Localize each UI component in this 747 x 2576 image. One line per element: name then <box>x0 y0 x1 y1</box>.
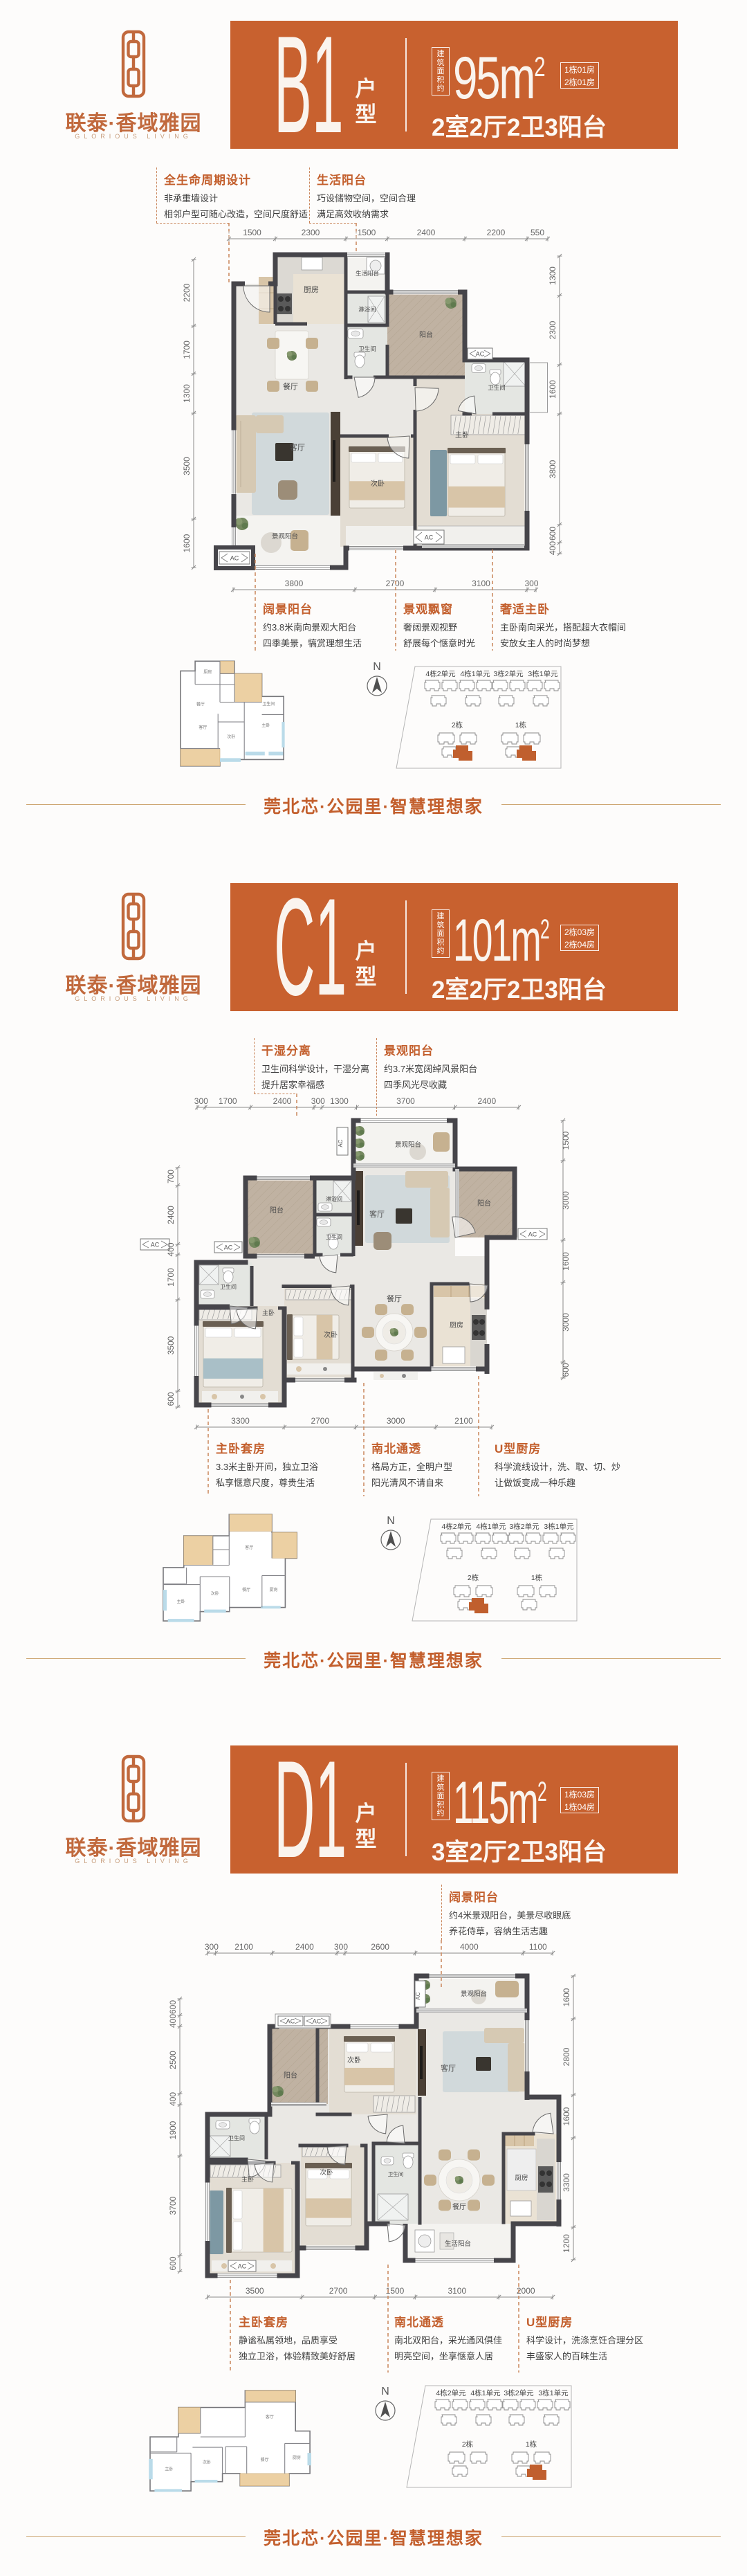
svg-text:3栋1单元: 3栋1单元 <box>528 669 558 678</box>
svg-text:卫生间: 卫生间 <box>262 701 275 707</box>
svg-text:1300: 1300 <box>548 266 557 285</box>
svg-text:主卧: 主卧 <box>262 1309 275 1316</box>
svg-text:4栋1单元: 4栋1单元 <box>476 1522 506 1531</box>
svg-text:1栋: 1栋 <box>515 720 527 729</box>
svg-text:1600: 1600 <box>561 1252 571 1271</box>
svg-text:次卧: 次卧 <box>203 2460 211 2465</box>
svg-text:餐厅: 餐厅 <box>196 702 205 707</box>
svg-text:卫生间: 卫生间 <box>358 345 376 352</box>
svg-text:客厅: 客厅 <box>290 442 305 452</box>
svg-text:4栋2单元: 4栋2单元 <box>436 2388 466 2397</box>
svg-text:次卧: 次卧 <box>227 734 235 740</box>
svg-text:餐厅: 餐厅 <box>261 2457 269 2462</box>
svg-text:主卧: 主卧 <box>165 2467 173 2472</box>
svg-text:1700: 1700 <box>219 1096 237 1106</box>
svg-text:AC: AC <box>151 1242 160 1249</box>
svg-text:AC: AC <box>230 555 239 562</box>
svg-text:1600: 1600 <box>182 534 192 552</box>
svg-text:卫生间: 卫生间 <box>220 1283 237 1290</box>
svg-text:阳台: 阳台 <box>477 1199 491 1208</box>
svg-text:AC: AC <box>238 2263 247 2270</box>
svg-text:1100: 1100 <box>529 1942 547 1952</box>
svg-text:次卧: 次卧 <box>320 2168 333 2177</box>
svg-text:1500: 1500 <box>243 228 261 237</box>
svg-text:1500: 1500 <box>358 228 376 237</box>
svg-text:淋浴间: 淋浴间 <box>358 306 376 313</box>
svg-text:2800: 2800 <box>562 2047 571 2066</box>
svg-text:400: 400 <box>548 541 557 555</box>
svg-text:3500: 3500 <box>246 2286 264 2296</box>
svg-text:300: 300 <box>194 1096 208 1106</box>
svg-text:2400: 2400 <box>477 1096 496 1106</box>
svg-text:AC: AC <box>286 2018 295 2025</box>
svg-text:客厅: 客厅 <box>266 2414 274 2420</box>
svg-text:主卧: 主卧 <box>261 723 270 728</box>
svg-text:2700: 2700 <box>329 2286 348 2296</box>
svg-text:卫生间: 卫生间 <box>228 2134 245 2141</box>
svg-text:主卧: 主卧 <box>241 2175 254 2183</box>
svg-text:2700: 2700 <box>386 579 405 588</box>
svg-text:卫生间: 卫生间 <box>326 1233 342 1240</box>
svg-text:主卧: 主卧 <box>177 1599 185 1604</box>
svg-text:4栋1单元: 4栋1单元 <box>470 2388 501 2397</box>
svg-text:4栋2单元: 4栋2单元 <box>425 669 456 678</box>
svg-text:3500: 3500 <box>182 457 192 475</box>
svg-text:1300: 1300 <box>330 1096 349 1106</box>
svg-text:AC: AC <box>415 1992 421 1999</box>
svg-text:400: 400 <box>168 2092 178 2106</box>
svg-text:2000: 2000 <box>517 2286 535 2296</box>
svg-text:客厅: 客厅 <box>245 1545 253 1550</box>
svg-text:1700: 1700 <box>182 341 192 359</box>
svg-text:客厅: 客厅 <box>199 725 207 730</box>
svg-text:次卧: 次卧 <box>347 2056 361 2065</box>
svg-text:1700: 1700 <box>166 1268 176 1287</box>
svg-text:400: 400 <box>168 2014 178 2028</box>
svg-text:AC: AC <box>224 1244 233 1251</box>
svg-text:1500: 1500 <box>561 1131 571 1150</box>
svg-text:1600: 1600 <box>548 380 557 399</box>
svg-text:3800: 3800 <box>548 460 557 478</box>
svg-text:景观阳台: 景观阳台 <box>395 1141 421 1149</box>
svg-text:厨房: 厨房 <box>515 2174 528 2182</box>
svg-text:N: N <box>381 2386 389 2397</box>
svg-text:400: 400 <box>166 1242 176 1256</box>
svg-text:3栋2单元: 3栋2单元 <box>504 2388 534 2397</box>
svg-text:2400: 2400 <box>417 228 436 237</box>
svg-text:厨房: 厨房 <box>450 1321 463 1330</box>
svg-text:卫生间: 卫生间 <box>388 2170 404 2177</box>
svg-text:AC: AC <box>425 534 434 541</box>
svg-text:300: 300 <box>524 579 538 588</box>
svg-text:1栋: 1栋 <box>531 1573 543 1582</box>
svg-text:3000: 3000 <box>561 1191 571 1210</box>
svg-text:3栋2单元: 3栋2单元 <box>493 669 524 678</box>
svg-text:餐厅: 餐厅 <box>387 1294 402 1303</box>
svg-text:阳台: 阳台 <box>270 1206 284 1215</box>
svg-text:餐厅: 餐厅 <box>283 381 298 391</box>
svg-text:AC: AC <box>476 351 485 358</box>
svg-text:3000: 3000 <box>561 1313 571 1332</box>
svg-text:AC: AC <box>313 2018 322 2025</box>
svg-text:客厅: 客厅 <box>441 2063 456 2073</box>
svg-text:1200: 1200 <box>562 2234 571 2253</box>
svg-text:4000: 4000 <box>460 1942 479 1952</box>
svg-text:卫生间: 卫生间 <box>488 384 506 391</box>
svg-text:3700: 3700 <box>168 2196 178 2215</box>
svg-text:2栋: 2栋 <box>452 720 463 729</box>
svg-text:3栋1单元: 3栋1单元 <box>538 2388 569 2397</box>
svg-text:1600: 1600 <box>562 1988 571 2006</box>
svg-text:3栋2单元: 3栋2单元 <box>509 1522 539 1531</box>
svg-text:600: 600 <box>168 2000 178 2014</box>
svg-text:餐厅: 餐厅 <box>242 1587 250 1593</box>
svg-text:550: 550 <box>531 228 544 237</box>
svg-text:1栋: 1栋 <box>526 2440 537 2449</box>
svg-text:3300: 3300 <box>562 2173 571 2192</box>
svg-text:1600: 1600 <box>562 2107 571 2125</box>
svg-text:次卧: 次卧 <box>211 1591 219 1597</box>
svg-text:淋浴间: 淋浴间 <box>326 1195 342 1202</box>
svg-text:600: 600 <box>166 1392 176 1406</box>
svg-text:2栋: 2栋 <box>468 1573 479 1582</box>
svg-text:1900: 1900 <box>168 2121 178 2139</box>
svg-text:3100: 3100 <box>472 579 490 588</box>
svg-text:2200: 2200 <box>182 283 192 302</box>
svg-text:2700: 2700 <box>311 1416 329 1426</box>
svg-text:客厅: 客厅 <box>369 1209 385 1219</box>
svg-text:厨房: 厨房 <box>203 669 212 675</box>
svg-text:阳台: 阳台 <box>284 2071 297 2080</box>
svg-text:AC: AC <box>528 1231 537 1238</box>
svg-text:2100: 2100 <box>234 1942 253 1952</box>
svg-text:600: 600 <box>168 2256 178 2270</box>
svg-text:AC: AC <box>338 1139 344 1147</box>
svg-text:次卧: 次卧 <box>324 1330 338 1339</box>
svg-text:300: 300 <box>334 1942 348 1952</box>
svg-text:700: 700 <box>166 1170 176 1183</box>
svg-text:600: 600 <box>561 1363 571 1377</box>
svg-text:阳台: 阳台 <box>419 330 433 339</box>
svg-text:2400: 2400 <box>166 1206 176 1224</box>
svg-text:3500: 3500 <box>166 1336 176 1354</box>
svg-text:3700: 3700 <box>396 1096 415 1106</box>
svg-text:2300: 2300 <box>302 228 320 237</box>
svg-text:3300: 3300 <box>231 1416 250 1426</box>
svg-text:2400: 2400 <box>295 1942 314 1952</box>
svg-text:景观阳台: 景观阳台 <box>461 1990 487 1998</box>
svg-text:次卧: 次卧 <box>371 479 385 488</box>
svg-text:N: N <box>387 1515 395 1527</box>
svg-text:3000: 3000 <box>387 1416 405 1426</box>
svg-text:2100: 2100 <box>454 1416 473 1426</box>
svg-text:主卧: 主卧 <box>455 430 469 439</box>
svg-text:3100: 3100 <box>448 2286 466 2296</box>
svg-text:生活阳台: 生活阳台 <box>356 270 379 277</box>
svg-text:2200: 2200 <box>487 228 506 237</box>
svg-text:2600: 2600 <box>371 1942 389 1952</box>
svg-text:生活阳台: 生活阳台 <box>445 2240 471 2248</box>
svg-text:2400: 2400 <box>273 1096 292 1106</box>
svg-text:厨房: 厨房 <box>270 1587 278 1593</box>
svg-text:300: 300 <box>311 1096 325 1106</box>
svg-text:4栋2单元: 4栋2单元 <box>441 1522 472 1531</box>
svg-text:1300: 1300 <box>182 384 192 403</box>
svg-text:600: 600 <box>548 527 557 541</box>
svg-text:厨房: 厨房 <box>293 2455 301 2460</box>
svg-text:N: N <box>373 661 381 673</box>
svg-text:300: 300 <box>205 1942 219 1952</box>
svg-text:4栋1单元: 4栋1单元 <box>460 669 490 678</box>
svg-text:2300: 2300 <box>548 320 557 339</box>
svg-text:景观阳台: 景观阳台 <box>272 532 298 541</box>
svg-text:厨房: 厨房 <box>304 285 319 294</box>
svg-text:3栋1单元: 3栋1单元 <box>544 1522 574 1531</box>
svg-text:3800: 3800 <box>285 579 304 588</box>
svg-text:2栋: 2栋 <box>462 2440 474 2449</box>
svg-text:餐厅: 餐厅 <box>452 2202 466 2211</box>
svg-text:2500: 2500 <box>168 2051 178 2069</box>
